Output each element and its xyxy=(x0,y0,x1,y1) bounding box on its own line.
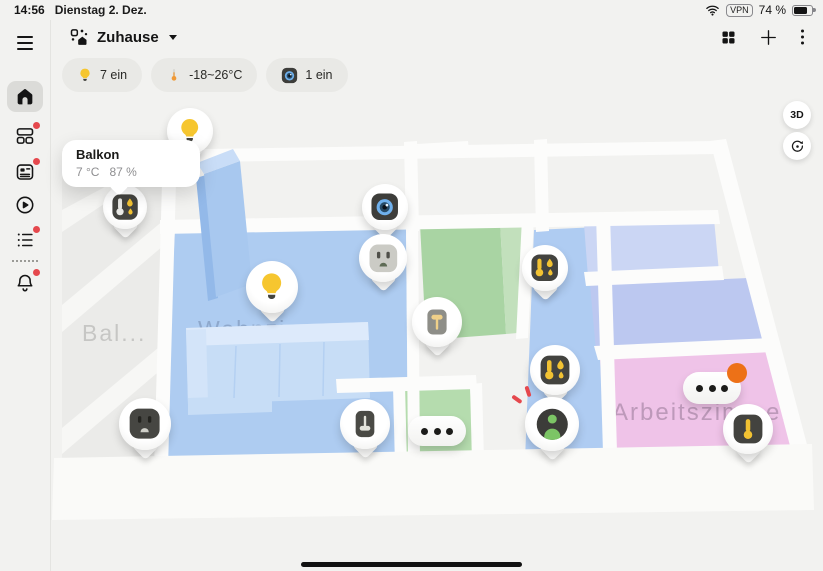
sidebar-item-home[interactable] xyxy=(0,86,50,108)
sidebar-item-automations[interactable] xyxy=(0,229,50,251)
sidebar-menu-button[interactable] xyxy=(0,32,50,50)
home-management-icon xyxy=(69,27,89,47)
switch-light-icon xyxy=(340,399,390,449)
smart-home-app-screen: Wohnzimmer Arbeitszimmer xyxy=(0,0,823,571)
climate-balcony-pin[interactable] xyxy=(103,185,147,229)
view-3d-button[interactable]: 3D xyxy=(783,101,811,129)
light-living-room-pin[interactable] xyxy=(246,261,298,313)
thermometer-office-pin[interactable] xyxy=(723,404,773,454)
header: Zuhause xyxy=(51,20,823,54)
sidebar-item-media[interactable] xyxy=(0,194,50,216)
thermo-humidity-icon xyxy=(530,345,580,395)
notification-dot xyxy=(33,226,40,233)
bulb-icon xyxy=(246,261,298,313)
climate-corridor-top-pin[interactable] xyxy=(522,245,568,291)
chip-label: 1 ein xyxy=(305,68,332,82)
newspaper-icon xyxy=(14,161,36,183)
status-date: Dienstag 2. Dez. xyxy=(55,3,147,17)
status-bar: 14:56 Dienstag 2. Dez. VPN 74 % xyxy=(0,0,823,20)
widgets-icon xyxy=(14,125,36,147)
alert-badge xyxy=(727,363,747,383)
socket-light-icon xyxy=(359,234,407,282)
chip-label: 7 ein xyxy=(100,68,127,82)
page-title: Zuhause xyxy=(97,29,159,46)
notification-dot xyxy=(33,158,40,165)
presence-corridor-pin[interactable] xyxy=(525,397,579,451)
home-selector[interactable]: Zuhause xyxy=(69,27,177,47)
tooltip-humidity: 87 % xyxy=(109,165,136,179)
notification-dot xyxy=(33,122,40,129)
vpn-badge: VPN xyxy=(726,4,753,17)
chip-label: -18~26°C xyxy=(189,68,242,82)
sidebar-divider xyxy=(0,260,50,262)
thermometer-icon xyxy=(166,66,182,84)
switch-kitchen-pin[interactable] xyxy=(412,297,462,347)
play-icon xyxy=(14,194,36,216)
chip-lights[interactable]: 7 ein xyxy=(62,58,142,92)
socket-living-room-pin[interactable] xyxy=(119,398,171,450)
grid-icon[interactable] xyxy=(720,29,737,46)
bell-icon xyxy=(14,272,36,294)
switch-yellow-icon xyxy=(412,297,462,347)
battery-icon xyxy=(792,5,813,16)
thermo-humidity-white-icon xyxy=(103,185,147,229)
list-icon xyxy=(14,229,36,251)
camera-hall-pin[interactable] xyxy=(362,184,408,230)
socket-hall-pin[interactable] xyxy=(359,234,407,282)
device-group-office-pin[interactable] xyxy=(683,372,741,404)
tooltip-temperature: 7 °C xyxy=(76,165,99,179)
thermo-humidity-icon xyxy=(522,245,568,291)
sidebar-item-devices[interactable] xyxy=(0,125,50,147)
switch-living-room-pin[interactable] xyxy=(340,399,390,449)
hamburger-icon xyxy=(17,32,33,50)
chevron-down-icon xyxy=(169,35,177,40)
add-icon[interactable] xyxy=(759,28,778,47)
socket-dark-icon xyxy=(119,398,171,450)
more-icon[interactable] xyxy=(800,28,805,46)
home-icon xyxy=(14,86,36,108)
thermo-icon xyxy=(723,404,773,454)
camera-icon xyxy=(281,67,298,84)
home-indicator[interactable] xyxy=(301,562,522,567)
camera-icon xyxy=(362,184,408,230)
chip-climate[interactable]: -18~26°C xyxy=(151,58,257,92)
device-group-kitchen-pin[interactable] xyxy=(408,416,466,446)
rotate-icon xyxy=(789,138,806,155)
tooltip-room-name: Balkon xyxy=(76,147,186,162)
sidebar-item-news[interactable] xyxy=(0,161,50,183)
device-tooltip[interactable]: Balkon 7 °C 87 % xyxy=(62,140,200,187)
sidebar-item-notifications[interactable] xyxy=(0,272,50,294)
rotate-view-button[interactable] xyxy=(783,132,811,160)
sidebar xyxy=(0,20,51,571)
wifi-icon xyxy=(705,4,720,16)
view-3d-label: 3D xyxy=(790,109,803,121)
clock: 14:56 xyxy=(14,3,45,17)
notification-dot xyxy=(33,269,40,276)
filter-chips: 7 ein -18~26°C 1 ein xyxy=(62,58,348,92)
person-icon xyxy=(525,397,579,451)
chip-cameras[interactable]: 1 ein xyxy=(266,58,347,92)
battery-percent: 74 % xyxy=(759,3,786,17)
bulb-icon xyxy=(77,67,93,83)
climate-corridor-bottom-pin[interactable] xyxy=(530,345,580,395)
